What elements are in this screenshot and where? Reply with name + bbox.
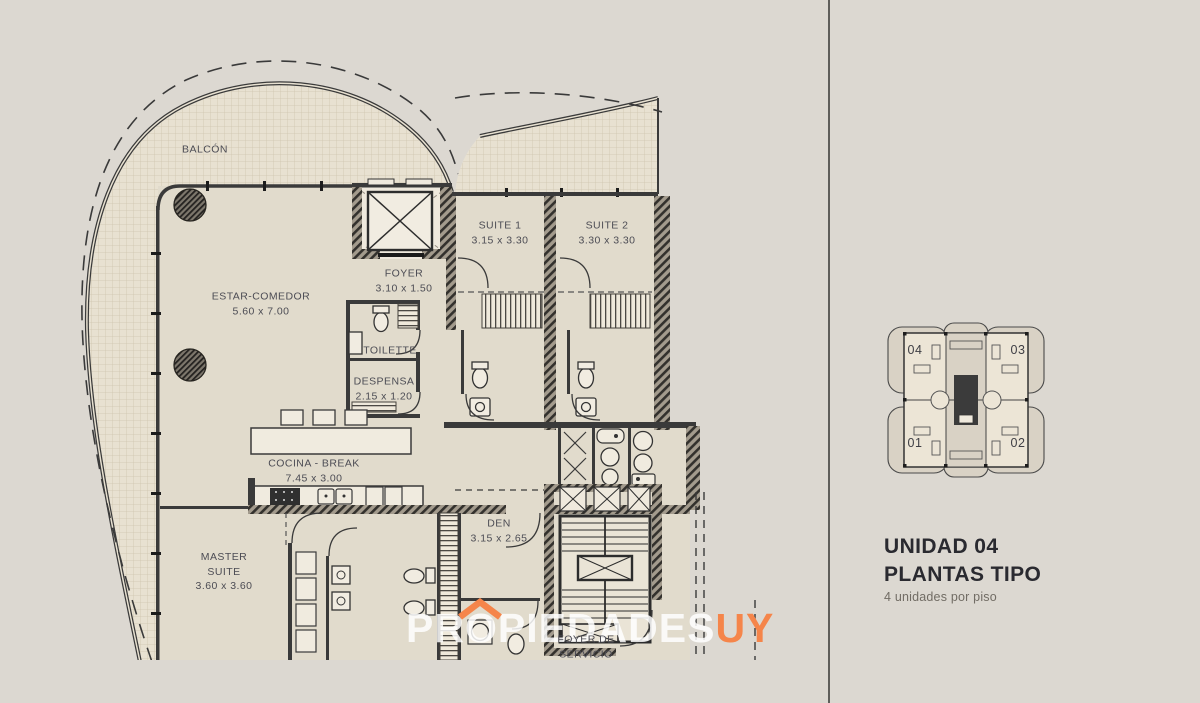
- servicio-name: FOYER DE SERVICIO: [557, 633, 614, 660]
- keyplan-unit-04: 04: [908, 343, 923, 357]
- page: BALCÓN ESTAR-COMEDOR 5.60 x 7.00 FOYER 3…: [0, 0, 1200, 703]
- keyplan-unit-02: 02: [1011, 436, 1026, 450]
- elevator-shaft: [352, 179, 452, 259]
- despensa-name: DESPENSA: [354, 375, 415, 387]
- unit-title-line2: PLANTAS TIPO: [884, 561, 1041, 589]
- room-label-foyer: FOYER 3.10 x 1.50: [376, 266, 433, 295]
- estar-name: ESTAR-COMEDOR: [212, 290, 310, 302]
- suite1-name: SUITE 1: [479, 219, 522, 231]
- master-dims: 3.60 x 3.60: [192, 579, 256, 594]
- room-label-master: MASTER SUITE 3.60 x 3.60: [192, 550, 256, 594]
- house-roof-icon: [456, 598, 504, 620]
- room-label-estar: ESTAR-COMEDOR 5.60 x 7.00: [212, 289, 310, 318]
- room-label-cocina: COCINA - BREAK 7.45 x 3.00: [268, 456, 359, 485]
- unit-title: UNIDAD 04 PLANTAS TIPO: [884, 533, 1041, 589]
- room-label-suite2: SUITE 2 3.30 x 3.30: [579, 218, 636, 247]
- cocina-name: COCINA - BREAK: [268, 457, 359, 469]
- balcon-name: BALCÓN: [182, 144, 228, 156]
- toilette-name: TOILETTE: [363, 345, 417, 357]
- estar-dims: 5.60 x 7.00: [212, 304, 310, 319]
- room-label-den: DEN 3.15 x 2.65: [471, 516, 528, 545]
- keyplan-unit-01: 01: [908, 436, 923, 450]
- despensa-dims: 2.15 x 1.20: [354, 389, 415, 404]
- room-label-balcon: BALCÓN: [182, 143, 228, 158]
- room-label-despensa: DESPENSA 2.15 x 1.20: [354, 374, 415, 403]
- room-label-servicio: FOYER DE SERVICIO: [549, 632, 623, 661]
- cocina-dims: 7.45 x 3.00: [268, 471, 359, 486]
- unit-subtitle: 4 unidades por piso: [884, 590, 997, 604]
- panel-divider: [828, 0, 830, 703]
- foyer-name: FOYER: [385, 267, 423, 279]
- den-dims: 3.15 x 2.65: [471, 531, 528, 546]
- unit-title-line1: UNIDAD 04: [884, 533, 1041, 561]
- room-label-toilette: TOILETTE: [363, 344, 417, 359]
- foyer-dims: 3.10 x 1.50: [376, 281, 433, 296]
- suite2-name: SUITE 2: [586, 219, 629, 231]
- suite1-dims: 3.15 x 3.30: [472, 233, 529, 248]
- balcony-suites: [455, 93, 662, 194]
- room-label-suite1: SUITE 1 3.15 x 3.30: [472, 218, 529, 247]
- watermark-suffix: UY: [715, 605, 774, 651]
- den-name: DEN: [487, 517, 511, 529]
- suite2-dims: 3.30 x 3.30: [579, 233, 636, 248]
- keyplan-unit-03: 03: [1011, 343, 1026, 357]
- master-name: MASTER SUITE: [201, 551, 247, 578]
